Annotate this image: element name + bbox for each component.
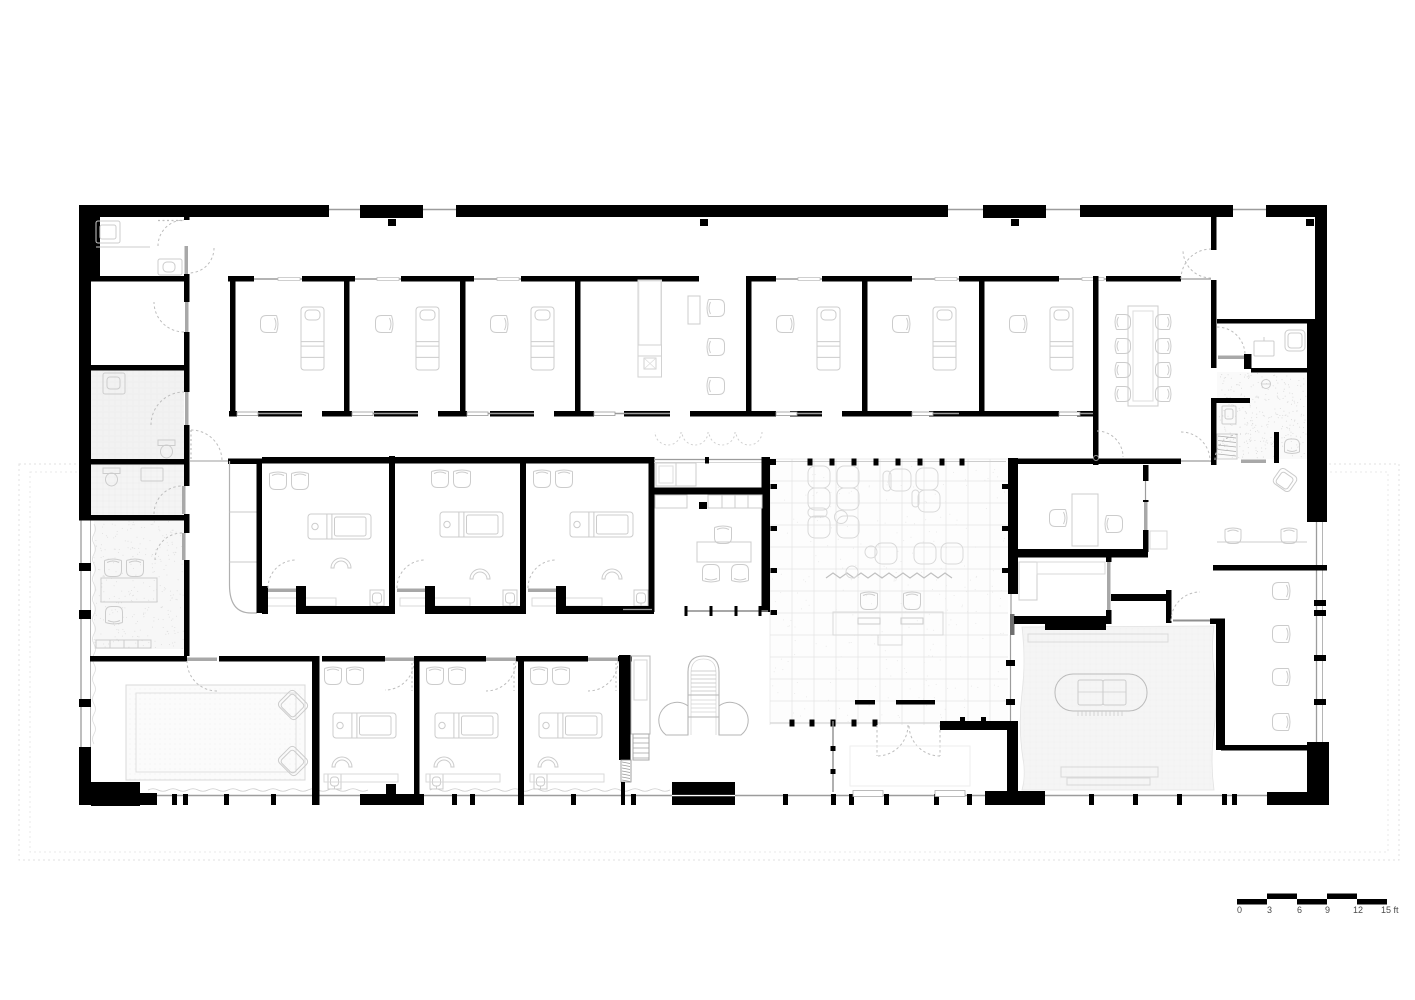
svg-text:3: 3 [1267,905,1272,915]
svg-text:9: 9 [1325,905,1330,915]
svg-text:12: 12 [1353,905,1363,915]
svg-text:15 ft: 15 ft [1381,905,1399,915]
svg-text:0: 0 [1237,905,1242,915]
svg-text:6: 6 [1297,905,1302,915]
